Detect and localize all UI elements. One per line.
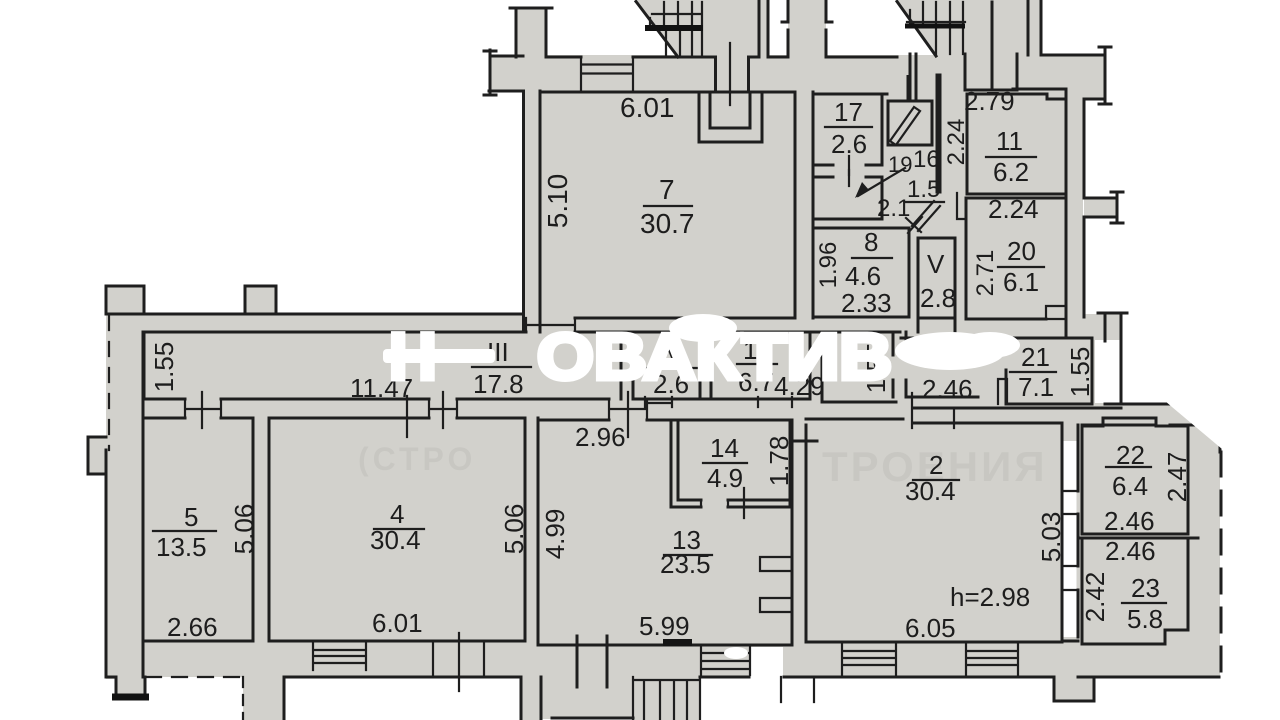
svg-text:30.7: 30.7 <box>640 208 695 239</box>
svg-text:1.55: 1.55 <box>149 342 179 393</box>
svg-text:13.5: 13.5 <box>156 532 207 562</box>
svg-text:5.06: 5.06 <box>229 504 259 555</box>
svg-text:30.4: 30.4 <box>370 525 421 555</box>
svg-text:(СТРО: (СТРО <box>358 441 476 477</box>
svg-text:2.96: 2.96 <box>575 422 626 452</box>
svg-text:16: 16 <box>913 146 940 173</box>
svg-text:23: 23 <box>1131 573 1160 603</box>
svg-text:4.9: 4.9 <box>707 463 743 493</box>
svg-text:6.4: 6.4 <box>1112 471 1148 501</box>
svg-text:20: 20 <box>1007 236 1036 266</box>
svg-text:2.1: 2.1 <box>877 195 910 222</box>
svg-text:7.1: 7.1 <box>1018 372 1054 402</box>
svg-text:19: 19 <box>888 152 912 177</box>
svg-text:V: V <box>927 249 945 279</box>
svg-text:4.99: 4.99 <box>540 509 570 560</box>
svg-text:2.46: 2.46 <box>1105 536 1156 566</box>
svg-text:4.6: 4.6 <box>845 261 881 291</box>
svg-text:2.66: 2.66 <box>167 612 218 642</box>
svg-text:17.8: 17.8 <box>473 369 524 399</box>
svg-text:5.03: 5.03 <box>1036 512 1066 563</box>
svg-text:1.78: 1.78 <box>764 436 794 487</box>
svg-text:2.46: 2.46 <box>922 374 973 404</box>
svg-text:2.47: 2.47 <box>1162 452 1192 503</box>
svg-text:6.01: 6.01 <box>372 608 423 638</box>
svg-text:ТРОЕНИЯ: ТРОЕНИЯ <box>822 443 1048 490</box>
svg-text:h=2.98: h=2.98 <box>950 582 1030 612</box>
svg-text:11: 11 <box>996 126 1023 156</box>
svg-text:14: 14 <box>710 433 739 463</box>
svg-text:21: 21 <box>1021 342 1050 372</box>
svg-text:17: 17 <box>834 97 863 127</box>
svg-text:1.96: 1.96 <box>815 242 842 289</box>
svg-text:2.6: 2.6 <box>831 129 867 159</box>
svg-text:5.06: 5.06 <box>499 504 529 555</box>
svg-text:1.55: 1.55 <box>1065 347 1095 398</box>
svg-text:2.79: 2.79 <box>964 86 1015 116</box>
svg-text:22: 22 <box>1116 440 1145 470</box>
svg-text:7: 7 <box>659 174 675 205</box>
svg-text:2.24: 2.24 <box>943 119 970 166</box>
svg-text:8: 8 <box>864 227 878 257</box>
svg-text:2.42: 2.42 <box>1080 572 1110 623</box>
svg-text:6.05: 6.05 <box>905 613 956 643</box>
svg-text:6.2: 6.2 <box>993 157 1029 187</box>
svg-text:2.46: 2.46 <box>1104 506 1155 536</box>
svg-text:2.24: 2.24 <box>988 194 1039 224</box>
svg-text:5.8: 5.8 <box>1127 604 1163 634</box>
svg-text:2.8: 2.8 <box>920 283 956 313</box>
svg-text:5: 5 <box>184 502 198 532</box>
svg-text:ОВАКТИВ: ОВАКТИВ <box>537 320 892 393</box>
svg-text:5.10: 5.10 <box>542 174 573 229</box>
svg-text:6.1: 6.1 <box>1003 267 1039 297</box>
svg-text:5.99: 5.99 <box>639 611 690 641</box>
svg-text:6.01: 6.01 <box>620 92 675 123</box>
svg-text:2.33: 2.33 <box>841 288 892 318</box>
svg-text:1.5: 1.5 <box>907 176 940 203</box>
svg-text:2.71: 2.71 <box>972 250 999 297</box>
svg-text:23.5: 23.5 <box>660 549 711 579</box>
